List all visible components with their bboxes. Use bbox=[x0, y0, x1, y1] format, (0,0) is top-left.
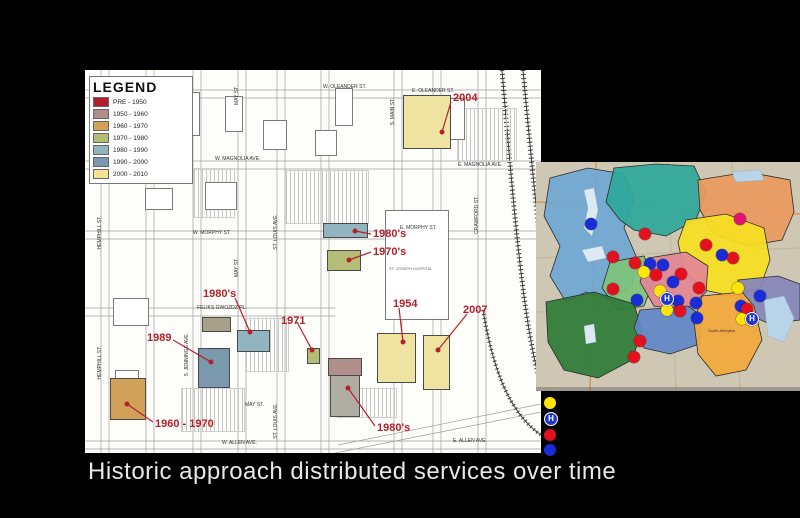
hospital-marker: H bbox=[544, 412, 558, 426]
blue-service-dot bbox=[754, 290, 766, 302]
region-map: HHSouth Arlington bbox=[536, 162, 800, 391]
region-label: South Arlington bbox=[708, 328, 735, 333]
yellow-service-dot bbox=[732, 282, 744, 294]
legend-entry: PRE - 1950 bbox=[93, 97, 189, 107]
legend-label: 1950 - 1960 bbox=[113, 111, 148, 118]
legend-swatch bbox=[93, 109, 109, 119]
leader-line bbox=[442, 102, 451, 132]
leader-dot bbox=[248, 330, 253, 335]
magenta-service-dot bbox=[734, 213, 746, 225]
leader-dot bbox=[125, 402, 130, 407]
yellow-service-dot bbox=[544, 397, 556, 409]
map-attribution-strip bbox=[536, 387, 800, 391]
campus-legend-entries: PRE - 19501950 - 19601960 - 19701970 - 1… bbox=[93, 97, 189, 179]
leader-dot bbox=[401, 340, 406, 345]
year-annotation: 1970's bbox=[373, 246, 406, 258]
leader-line bbox=[127, 404, 153, 422]
year-annotation: 1980's bbox=[373, 228, 406, 240]
red-service-dot bbox=[650, 269, 662, 281]
hospital-marker: H bbox=[745, 312, 759, 326]
legend-label: 1990 - 2000 bbox=[113, 159, 148, 166]
leader-dot bbox=[347, 258, 352, 263]
symbol-legend: H bbox=[544, 397, 558, 456]
legend-swatch bbox=[93, 121, 109, 131]
red-service-dot bbox=[674, 305, 686, 317]
legend-swatch bbox=[93, 145, 109, 155]
legend-entry: 1990 - 2000 bbox=[93, 157, 189, 167]
lake bbox=[584, 324, 596, 344]
red-service-dot bbox=[607, 251, 619, 263]
legend-label: 1960 - 1970 bbox=[113, 123, 148, 130]
hospital-marker: H bbox=[660, 292, 674, 306]
legend-swatch bbox=[93, 97, 109, 107]
legend-entry: 1980 - 1990 bbox=[93, 145, 189, 155]
year-annotation: 1954 bbox=[393, 298, 417, 310]
legend-label: PRE - 1950 bbox=[113, 99, 147, 106]
leader-dot bbox=[310, 348, 315, 353]
campus-map: LEGEND PRE - 19501950 - 19601960 - 19701… bbox=[85, 70, 541, 453]
blue-service-dot bbox=[691, 312, 703, 324]
year-annotation: 1989 bbox=[147, 332, 171, 344]
red-service-dot bbox=[727, 252, 739, 264]
legend-entry: 1950 - 1960 bbox=[93, 109, 189, 119]
slide-caption: Historic approach distributed services o… bbox=[88, 458, 616, 486]
legend-swatch bbox=[93, 133, 109, 143]
blue-service-dot bbox=[690, 297, 702, 309]
leader-dot bbox=[209, 360, 214, 365]
legend-swatch bbox=[93, 169, 109, 179]
legend-entry: 1970 - 1980 bbox=[93, 133, 189, 143]
legend-entry: 2000 - 2010 bbox=[93, 169, 189, 179]
legend-label: 1980 - 1990 bbox=[113, 147, 148, 154]
presentation-slide: LEGEND PRE - 19501950 - 19601960 - 19701… bbox=[0, 0, 800, 518]
legend-swatch bbox=[93, 157, 109, 167]
blue-service-dot bbox=[585, 218, 597, 230]
leader-line bbox=[438, 314, 467, 350]
legend-entry: 1960 - 1970 bbox=[93, 121, 189, 131]
campus-legend: LEGEND PRE - 19501950 - 19601960 - 19701… bbox=[89, 76, 193, 184]
blue-service-dot bbox=[667, 276, 679, 288]
lake bbox=[732, 170, 764, 182]
year-annotation: 1980's bbox=[203, 288, 236, 300]
red-service-dot bbox=[544, 429, 556, 441]
leader-line bbox=[349, 252, 371, 260]
yellow-service-dot bbox=[638, 266, 650, 278]
year-annotation: 1971 bbox=[281, 315, 305, 327]
year-annotation: 2004 bbox=[453, 92, 477, 104]
leader-line bbox=[399, 308, 403, 342]
red-service-dot bbox=[607, 283, 619, 295]
year-annotation: 2007 bbox=[463, 304, 487, 316]
year-annotation: 1980's bbox=[377, 422, 410, 434]
red-service-dot bbox=[628, 351, 640, 363]
red-service-dot bbox=[693, 282, 705, 294]
leader-line bbox=[348, 388, 375, 426]
leader-dot bbox=[440, 130, 445, 135]
blue-service-dot bbox=[631, 294, 643, 306]
campus-legend-title: LEGEND bbox=[93, 79, 189, 95]
leader-line bbox=[173, 340, 211, 362]
red-service-dot bbox=[700, 239, 712, 251]
year-annotation: 1960 - 1970 bbox=[155, 418, 214, 430]
leader-dot bbox=[353, 229, 358, 234]
leader-dot bbox=[346, 386, 351, 391]
region-polygons bbox=[536, 162, 800, 391]
leader-dot bbox=[436, 348, 441, 353]
leader-line bbox=[235, 298, 250, 332]
red-service-dot bbox=[634, 335, 646, 347]
red-service-dot bbox=[639, 228, 651, 240]
legend-label: 2000 - 2010 bbox=[113, 171, 148, 178]
legend-label: 1970 - 1980 bbox=[113, 135, 148, 142]
blue-service-dot bbox=[544, 444, 556, 456]
